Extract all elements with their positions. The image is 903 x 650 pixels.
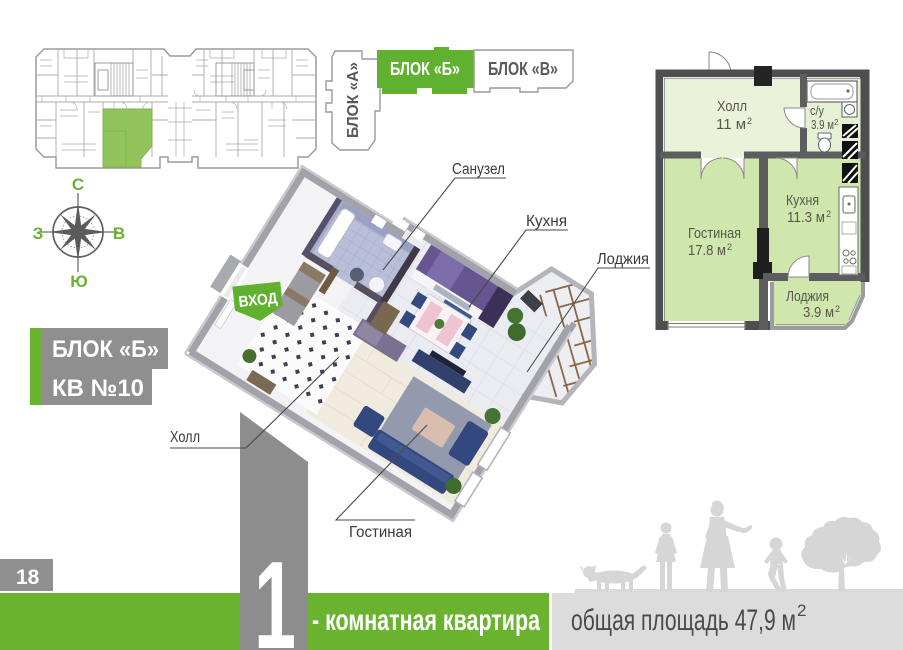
svg-text:Холл: Холл [170,429,200,446]
svg-text:3.9 м: 3.9 м [803,305,834,321]
svg-text:2: 2 [835,304,840,314]
svg-text:2: 2 [727,242,732,252]
svg-text:БЛОК «В»: БЛОК «В» [488,59,558,79]
svg-text:2: 2 [834,118,839,127]
svg-text:1: 1 [254,537,296,650]
svg-text:Лоджия: Лоджия [597,251,649,268]
svg-text:С: С [72,175,84,194]
svg-text:БЛОК «Б»: БЛОК «Б» [390,59,460,79]
svg-text:2: 2 [747,116,752,126]
svg-text:2: 2 [826,209,831,219]
svg-text:17.8 м: 17.8 м [688,243,726,259]
svg-text:11.3 м: 11.3 м [787,210,825,226]
svg-text:общая площадь 47,9 м: общая площадь 47,9 м [571,604,796,637]
svg-text:2: 2 [797,601,806,620]
svg-text:Лоджия: Лоджия [786,289,829,305]
svg-text:БЛОК «Б»: БЛОК «Б» [52,336,159,363]
svg-text:18: 18 [16,566,40,589]
svg-text:З: З [33,224,44,243]
svg-text:Кухня: Кухня [526,213,567,230]
svg-text:Гостиная: Гостиная [688,226,741,242]
svg-text:с/у: с/у [810,104,825,118]
svg-text:БЛОК «А»: БЛОК «А» [345,62,362,138]
svg-text:11 м: 11 м [716,117,746,133]
svg-text:Холл: Холл [717,99,747,115]
svg-text:КВ №10: КВ №10 [52,375,144,402]
svg-text:В: В [113,224,125,243]
svg-text:Гостиная: Гостиная [349,524,412,541]
svg-text:- комнатная квартира: - комнатная квартира [312,604,540,637]
svg-text:Кухня: Кухня [786,193,819,209]
svg-text:3.9 м: 3.9 м [811,118,834,132]
svg-text:Ю: Ю [70,272,88,291]
svg-text:Санузел: Санузел [452,161,505,178]
